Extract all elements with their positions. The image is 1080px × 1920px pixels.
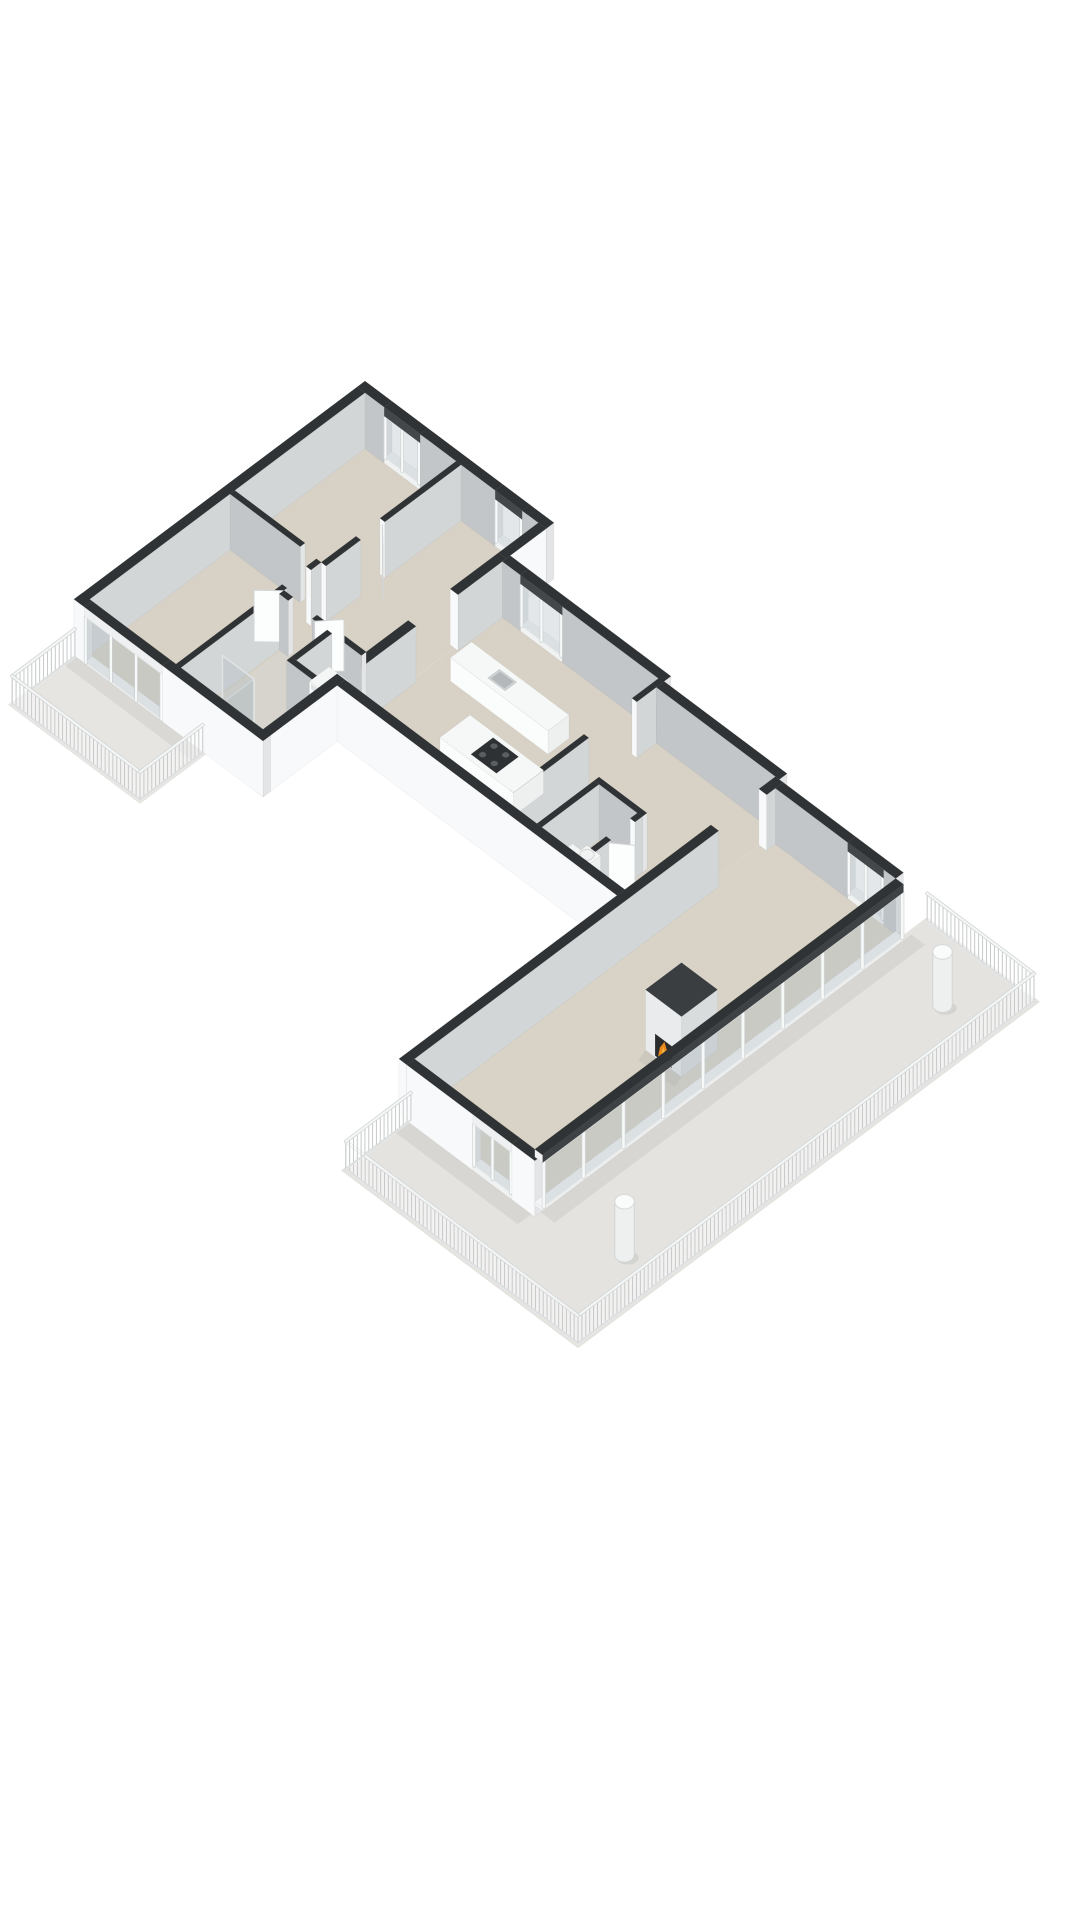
cooktop-burner-1 xyxy=(490,743,497,748)
cooktop-burner-4 xyxy=(491,761,498,766)
a-int-wall-bath-a xyxy=(279,590,293,656)
a-door-bedroom xyxy=(382,525,383,600)
page-background xyxy=(0,0,1080,1920)
floorplan-canvas xyxy=(0,0,1080,1920)
a-int-wall-left-a xyxy=(306,559,321,626)
cooktop-burner-3 xyxy=(479,752,486,757)
cooktop-burner-2 xyxy=(502,752,509,757)
